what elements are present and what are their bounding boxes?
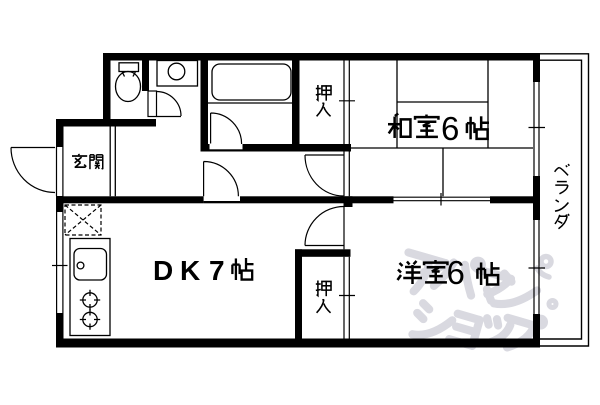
svg-text:D: D	[153, 255, 173, 286]
svg-text:6: 6	[447, 254, 465, 291]
svg-text:7: 7	[209, 255, 225, 286]
svg-text:K: K	[180, 255, 200, 286]
svg-text:6: 6	[441, 110, 459, 147]
